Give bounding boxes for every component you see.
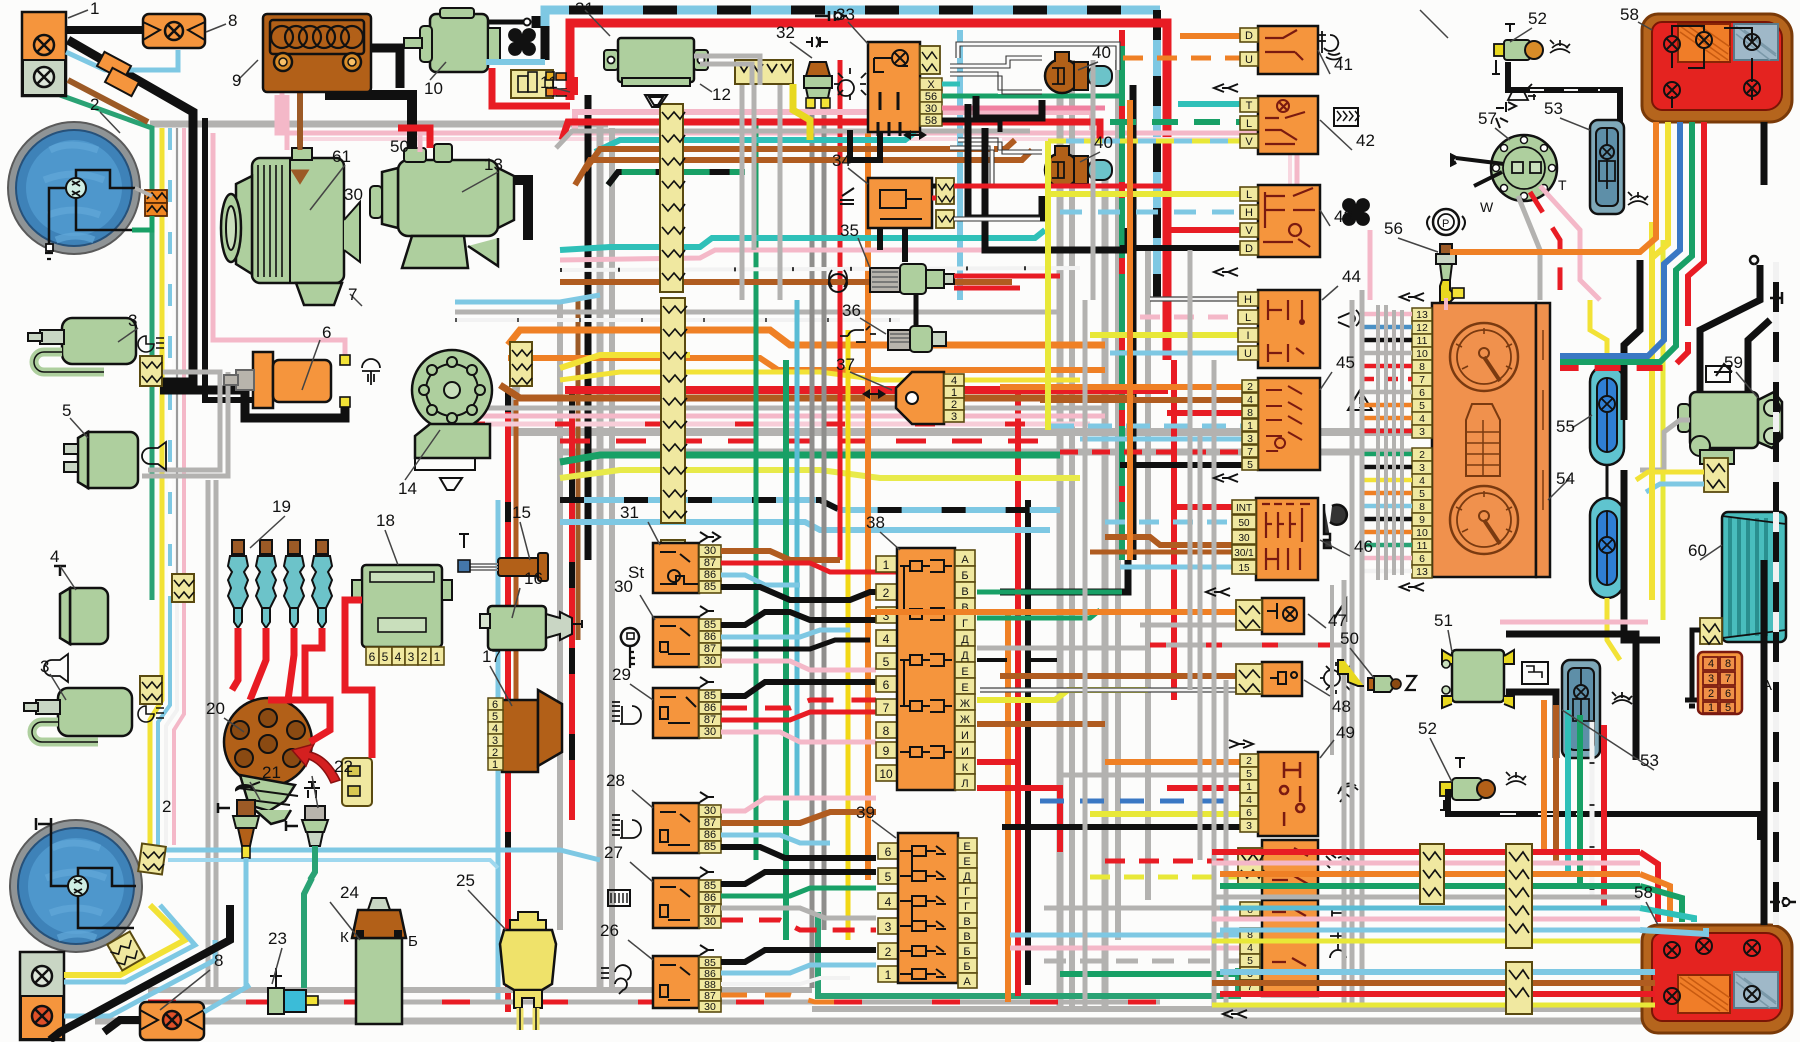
- svg-text:H: H: [1244, 294, 1252, 306]
- svg-text:6: 6: [492, 699, 498, 711]
- svg-text:30: 30: [704, 805, 716, 817]
- svg-text:43: 43: [1334, 207, 1353, 226]
- svg-text:34: 34: [832, 151, 851, 170]
- svg-text:7: 7: [883, 701, 890, 715]
- svg-text:86: 86: [704, 829, 716, 841]
- svg-text:6: 6: [1419, 387, 1425, 399]
- svg-text:7: 7: [1419, 374, 1425, 386]
- svg-text:12: 12: [712, 85, 731, 104]
- svg-text:1: 1: [885, 968, 892, 982]
- svg-text:2: 2: [885, 945, 892, 959]
- svg-text:58: 58: [1634, 883, 1653, 902]
- svg-text:58: 58: [925, 115, 937, 127]
- svg-text:5: 5: [382, 650, 389, 664]
- svg-text:13: 13: [1416, 309, 1428, 321]
- svg-text:21: 21: [262, 763, 281, 782]
- svg-text:4: 4: [885, 895, 892, 909]
- svg-text:20: 20: [206, 699, 225, 718]
- svg-text:Ж: Ж: [960, 698, 970, 710]
- svg-text:L: L: [1246, 118, 1252, 130]
- svg-text:30: 30: [704, 655, 716, 667]
- svg-text:3: 3: [1419, 462, 1425, 474]
- svg-text:85: 85: [704, 841, 716, 853]
- svg-text:4: 4: [883, 632, 890, 646]
- svg-text:25: 25: [456, 871, 475, 890]
- svg-text:4: 4: [50, 547, 59, 566]
- svg-text:38: 38: [866, 513, 885, 532]
- svg-text:6: 6: [1246, 807, 1252, 819]
- svg-text:86: 86: [704, 702, 716, 714]
- svg-text:Г: Г: [964, 901, 970, 913]
- svg-text:L: L: [1246, 189, 1252, 201]
- svg-text:10: 10: [879, 767, 893, 781]
- svg-text:1: 1: [434, 650, 441, 664]
- svg-text:А: А: [961, 554, 969, 566]
- svg-text:T: T: [1246, 100, 1253, 112]
- svg-text:9: 9: [1419, 514, 1425, 526]
- svg-text:D: D: [1245, 243, 1253, 255]
- svg-text:3: 3: [885, 920, 892, 934]
- svg-text:35: 35: [840, 221, 859, 240]
- svg-text:К: К: [962, 762, 969, 774]
- svg-text:2: 2: [1708, 688, 1714, 700]
- svg-text:U: U: [1245, 54, 1253, 66]
- svg-text:Е: Е: [961, 682, 968, 694]
- svg-text:47: 47: [1328, 611, 1347, 630]
- svg-text:1: 1: [492, 759, 498, 771]
- svg-text:41: 41: [1334, 55, 1353, 74]
- svg-text:5: 5: [883, 655, 890, 669]
- svg-text:10: 10: [424, 79, 443, 98]
- svg-text:В: В: [963, 916, 970, 928]
- svg-text:87: 87: [704, 904, 716, 916]
- svg-text:86: 86: [704, 631, 716, 643]
- svg-text:5: 5: [492, 711, 498, 723]
- svg-text:15: 15: [1238, 563, 1250, 574]
- svg-text:Д: Д: [961, 650, 969, 662]
- svg-text:5: 5: [1725, 702, 1731, 714]
- svg-text:Л: Л: [961, 778, 968, 790]
- svg-text:3: 3: [1246, 820, 1252, 832]
- svg-text:8: 8: [1419, 501, 1425, 513]
- svg-text:87: 87: [704, 817, 716, 829]
- svg-text:8: 8: [228, 11, 237, 30]
- svg-text:37: 37: [836, 355, 855, 374]
- svg-text:1: 1: [951, 387, 957, 399]
- svg-text:4: 4: [1247, 942, 1253, 954]
- svg-text:10: 10: [1416, 527, 1428, 539]
- svg-text:24: 24: [340, 883, 359, 902]
- svg-text:2: 2: [162, 797, 171, 816]
- svg-text:H: H: [1245, 207, 1253, 219]
- svg-text:57: 57: [1478, 109, 1497, 128]
- svg-text:86: 86: [704, 892, 716, 904]
- svg-text:30: 30: [704, 726, 716, 738]
- svg-text:54: 54: [1556, 469, 1575, 488]
- svg-text:Б: Б: [961, 570, 968, 582]
- svg-text:87: 87: [704, 643, 716, 655]
- svg-text:53: 53: [1640, 751, 1659, 770]
- svg-text:X: X: [927, 79, 935, 91]
- svg-text:Б: Б: [963, 961, 970, 973]
- svg-text:30: 30: [925, 103, 937, 115]
- svg-text:8: 8: [1419, 361, 1425, 373]
- svg-text:26: 26: [600, 921, 619, 940]
- svg-text:1: 1: [883, 558, 890, 572]
- svg-text:6: 6: [885, 845, 892, 859]
- svg-text:5: 5: [885, 870, 892, 884]
- svg-text:48: 48: [1332, 697, 1351, 716]
- svg-text:Е: Е: [963, 856, 970, 868]
- svg-text:50: 50: [1238, 518, 1250, 529]
- svg-text:3: 3: [1708, 673, 1714, 685]
- svg-text:V: V: [1245, 136, 1253, 148]
- svg-text:87: 87: [704, 714, 716, 726]
- svg-text:Б: Б: [408, 933, 418, 950]
- svg-text:14: 14: [398, 479, 417, 498]
- svg-text:49: 49: [1336, 723, 1355, 742]
- svg-text:2: 2: [90, 95, 99, 114]
- svg-text:31: 31: [620, 503, 639, 522]
- svg-text:59: 59: [1724, 353, 1743, 372]
- svg-text:36: 36: [842, 301, 861, 320]
- svg-text:Г: Г: [962, 618, 968, 630]
- svg-text:50: 50: [390, 137, 409, 156]
- svg-text:В: В: [961, 586, 968, 598]
- svg-text:6: 6: [369, 650, 376, 664]
- svg-text:6: 6: [1725, 688, 1731, 700]
- svg-text:52: 52: [1418, 719, 1437, 738]
- svg-text:6: 6: [883, 678, 890, 692]
- svg-text:18: 18: [376, 511, 395, 530]
- svg-text:15: 15: [512, 503, 531, 522]
- svg-text:12: 12: [1416, 322, 1428, 334]
- svg-text:3: 3: [1419, 426, 1425, 438]
- svg-text:30/1: 30/1: [1234, 548, 1254, 559]
- svg-text:61: 61: [332, 147, 351, 166]
- svg-text:5: 5: [1247, 459, 1253, 471]
- svg-text:К: К: [340, 929, 349, 946]
- svg-text:85: 85: [704, 880, 716, 892]
- svg-text:10: 10: [1416, 348, 1428, 360]
- svg-text:17: 17: [482, 647, 501, 666]
- svg-text:4: 4: [1247, 394, 1253, 406]
- svg-text:52: 52: [1528, 9, 1547, 28]
- svg-text:56: 56: [1384, 219, 1403, 238]
- svg-text:5: 5: [62, 401, 71, 420]
- svg-text:40: 40: [1092, 43, 1111, 62]
- svg-text:2: 2: [883, 586, 890, 600]
- svg-text:5: 5: [1419, 488, 1425, 500]
- svg-text:28: 28: [606, 771, 625, 790]
- svg-text:30: 30: [614, 577, 633, 596]
- svg-text:6: 6: [1419, 553, 1425, 565]
- svg-text:11: 11: [1417, 540, 1428, 552]
- svg-text:51: 51: [1434, 611, 1453, 630]
- svg-text:85: 85: [704, 581, 716, 593]
- svg-text:INT: INT: [1236, 503, 1252, 514]
- svg-text:19: 19: [272, 497, 291, 516]
- svg-text:Е: Е: [961, 666, 968, 678]
- svg-text:85: 85: [704, 690, 716, 702]
- svg-text:И: И: [961, 730, 969, 742]
- svg-text:7: 7: [1247, 446, 1253, 458]
- svg-text:31: 31: [575, 0, 594, 18]
- svg-text:6: 6: [322, 323, 331, 342]
- svg-text:3: 3: [40, 657, 49, 676]
- svg-text:3: 3: [492, 735, 498, 747]
- svg-text:55: 55: [1556, 417, 1575, 436]
- svg-text:56: 56: [925, 91, 937, 103]
- svg-text:1: 1: [1247, 420, 1253, 432]
- svg-text:30: 30: [704, 545, 716, 557]
- svg-text:В: В: [963, 931, 970, 943]
- svg-text:Д: Д: [963, 871, 971, 883]
- svg-text:8: 8: [1247, 407, 1253, 419]
- svg-text:2: 2: [492, 747, 498, 759]
- svg-text:53: 53: [1544, 99, 1563, 118]
- svg-text:30: 30: [1238, 533, 1250, 544]
- svg-text:И: И: [961, 746, 969, 758]
- svg-text:3: 3: [128, 311, 137, 330]
- svg-text:13: 13: [484, 155, 503, 174]
- svg-text:D: D: [1245, 30, 1253, 42]
- svg-text:44: 44: [1342, 267, 1361, 286]
- svg-text:42: 42: [1356, 131, 1375, 150]
- svg-text:9: 9: [883, 744, 890, 758]
- svg-text:33: 33: [836, 5, 855, 24]
- svg-text:23: 23: [268, 929, 287, 948]
- svg-text:3: 3: [1247, 433, 1253, 445]
- svg-text:50: 50: [1340, 629, 1359, 648]
- svg-text:16: 16: [524, 569, 543, 588]
- svg-text:11: 11: [540, 73, 558, 92]
- svg-text:Б: Б: [963, 946, 970, 958]
- svg-text:46: 46: [1354, 537, 1373, 556]
- svg-text:4: 4: [1708, 658, 1714, 670]
- svg-text:1: 1: [1246, 781, 1252, 793]
- svg-text:9: 9: [232, 71, 241, 90]
- svg-text:87: 87: [704, 557, 716, 569]
- svg-text:32: 32: [776, 23, 795, 42]
- svg-text:30: 30: [344, 185, 363, 204]
- svg-text:29: 29: [612, 665, 631, 684]
- svg-text:5: 5: [1246, 768, 1252, 780]
- svg-text:4: 4: [951, 375, 957, 387]
- svg-text:45: 45: [1336, 353, 1355, 372]
- svg-text:2: 2: [1246, 755, 1252, 767]
- svg-text:4: 4: [492, 723, 498, 735]
- svg-text:7: 7: [1725, 673, 1731, 685]
- svg-text:I: I: [1246, 330, 1249, 342]
- svg-text:27: 27: [604, 843, 623, 862]
- svg-text:7: 7: [348, 285, 357, 304]
- svg-text:Ж: Ж: [960, 714, 970, 726]
- svg-text:5: 5: [1419, 400, 1425, 412]
- svg-text:2: 2: [951, 399, 957, 411]
- svg-text:4: 4: [1246, 794, 1252, 806]
- svg-text:W: W: [1480, 199, 1494, 215]
- svg-text:60: 60: [1688, 541, 1707, 560]
- svg-text:58: 58: [1620, 5, 1639, 24]
- svg-text:L: L: [1245, 312, 1251, 324]
- svg-text:30: 30: [704, 916, 716, 928]
- svg-text:V: V: [1245, 225, 1253, 237]
- svg-text:2: 2: [1247, 381, 1253, 393]
- svg-text:2: 2: [421, 650, 428, 664]
- svg-text:Д: Д: [961, 634, 969, 646]
- svg-text:Е: Е: [963, 841, 970, 853]
- svg-text:А: А: [963, 976, 971, 988]
- svg-text:1: 1: [1708, 702, 1714, 714]
- svg-text:13: 13: [1416, 566, 1428, 578]
- svg-text:85: 85: [704, 619, 716, 631]
- svg-text:40: 40: [1094, 133, 1113, 152]
- svg-text:P: P: [1442, 218, 1449, 230]
- svg-text:1: 1: [90, 0, 99, 18]
- svg-text:T: T: [1558, 177, 1567, 193]
- svg-text:2: 2: [1419, 449, 1425, 461]
- svg-text:8: 8: [214, 951, 223, 970]
- svg-text:3: 3: [951, 411, 957, 423]
- svg-text:8: 8: [1725, 658, 1731, 670]
- svg-text:Г: Г: [964, 886, 970, 898]
- svg-text:30: 30: [704, 1001, 716, 1013]
- svg-text:22: 22: [334, 757, 353, 776]
- svg-text:5: 5: [1247, 955, 1253, 967]
- svg-text:4: 4: [395, 650, 402, 664]
- svg-text:3: 3: [408, 650, 415, 664]
- svg-text:11: 11: [1417, 335, 1428, 347]
- svg-text:8: 8: [883, 724, 890, 738]
- svg-text:39: 39: [856, 803, 875, 822]
- svg-text:4: 4: [1419, 413, 1425, 425]
- svg-text:4: 4: [1419, 475, 1425, 487]
- svg-text:U: U: [1244, 348, 1252, 360]
- svg-text:86: 86: [704, 569, 716, 581]
